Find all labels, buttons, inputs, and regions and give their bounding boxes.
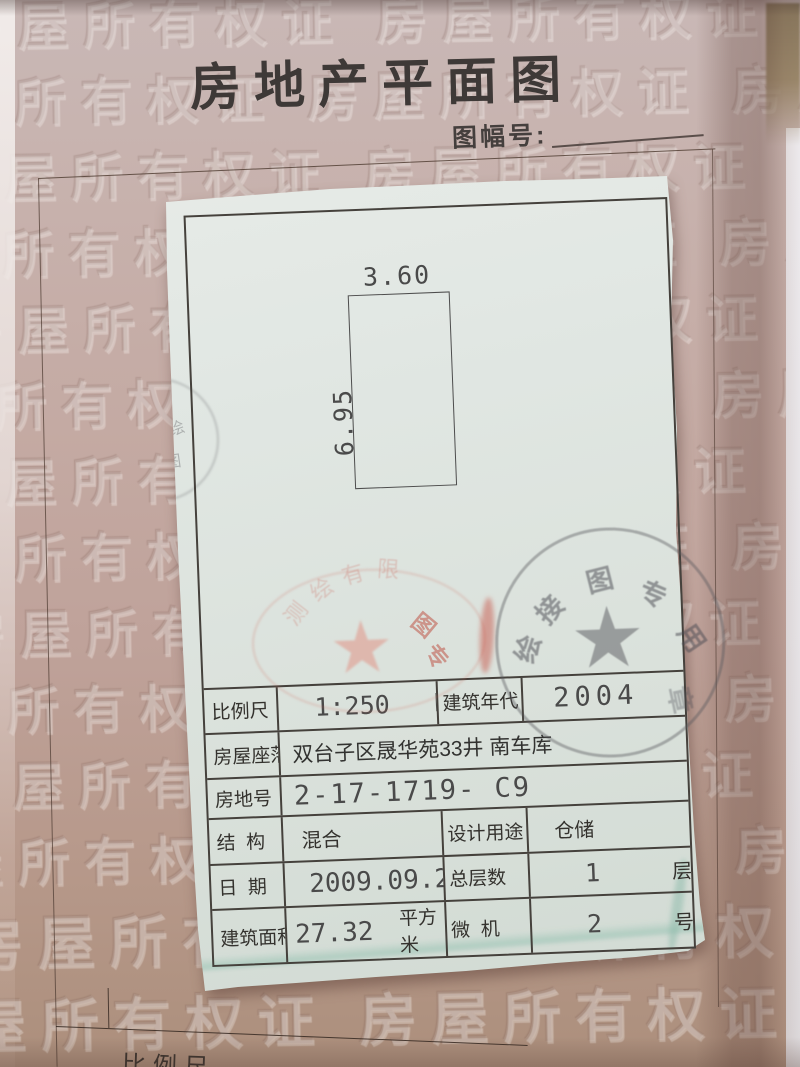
date-label: 日 期 bbox=[211, 863, 287, 909]
plan-paper-content: 3.60 6.95 比例尺 1:250 M 建筑年代 2004 房屋座落 双台子… bbox=[172, 156, 723, 995]
gray-seal-char: 绘 bbox=[503, 629, 548, 667]
gray-seal-char: 章 bbox=[660, 682, 704, 717]
floors-label: 总层数 bbox=[444, 854, 531, 900]
gray-seal-char: 接 bbox=[525, 585, 572, 631]
floors-unit: 层 bbox=[672, 855, 692, 885]
computer-label: 微 机 bbox=[446, 899, 533, 956]
dimension-width-label: 3.60 bbox=[339, 259, 454, 292]
area-unit: 平方米 bbox=[398, 902, 446, 958]
structure-label: 结 构 bbox=[209, 817, 285, 864]
location-label: 房屋座落 bbox=[205, 732, 281, 778]
area-label: 建筑面积 bbox=[212, 908, 288, 965]
date-value: 2009.09.29 bbox=[285, 863, 446, 900]
location-value: 双台子区晟华苑33井 南车库 bbox=[280, 728, 553, 768]
gray-seal-char: 用 bbox=[670, 615, 717, 659]
structure-value: 混合 bbox=[283, 822, 342, 853]
area-value: 27.32 bbox=[295, 917, 374, 950]
partial-edge-seal-char: 图 bbox=[163, 447, 182, 473]
scale-label: 比例尺 bbox=[204, 687, 280, 733]
usage-label: 设计用途 bbox=[443, 808, 530, 855]
computer-unit: 号 bbox=[673, 905, 694, 935]
building-outline bbox=[348, 291, 457, 489]
floors-value: 1 bbox=[585, 858, 601, 888]
usage-value: 仓储 bbox=[528, 813, 595, 845]
parcel-label: 房地号 bbox=[207, 777, 282, 818]
parcel-value: 2-17-1719- C9 bbox=[281, 771, 531, 812]
red-seal-star-icon: ★ bbox=[328, 604, 396, 690]
certificate-photo: 房屋所有权证 房屋所有权证 房屋所有权证 房屋所有权证 房屋所有权证 房屋所有权… bbox=[0, 0, 800, 1067]
computer-value: 2 bbox=[586, 909, 602, 939]
red-seal-char: 限 bbox=[376, 551, 400, 584]
